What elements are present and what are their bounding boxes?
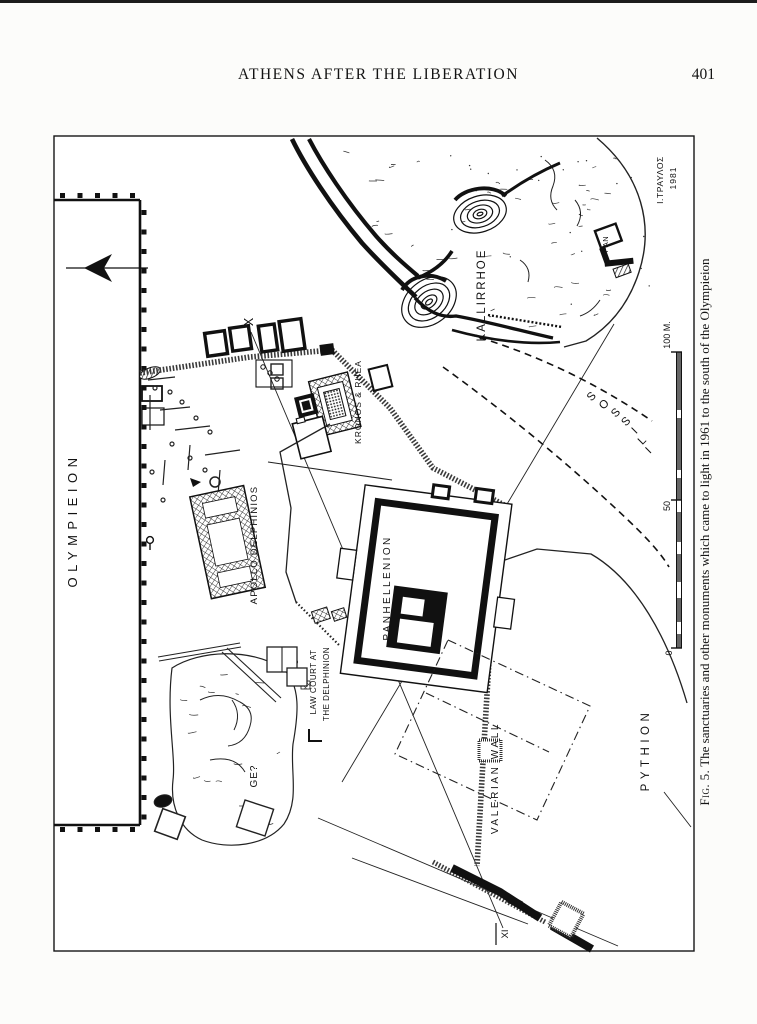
figure-caption-number: Fig. 5. xyxy=(697,770,712,806)
signature-year: 1981 xyxy=(668,167,678,190)
figure-caption-text: The sanctuaries and other monuments whic… xyxy=(697,258,712,766)
panhellenion-label: PANHELLENION xyxy=(382,535,393,640)
law-court-label-1: LAW COURT AT xyxy=(309,650,318,715)
olympieion-label: OLYMPIEION xyxy=(65,453,80,588)
valerian-wall-label: VALERIAN WALL xyxy=(490,722,501,834)
point-xi-label: XI xyxy=(500,930,511,939)
scale-100-label: 100 M. xyxy=(662,321,672,349)
scale-0-label: 0 xyxy=(664,650,674,655)
apollo-delphinios-label: APOLLO DELPHINIOS xyxy=(249,486,260,605)
figure-5-map: OLYMPIEION KALLIRRHOE ILISSOS KRONOS & R… xyxy=(0,0,757,1024)
pythion-label: PYTHION xyxy=(640,709,652,792)
pan-label: PAN xyxy=(601,236,610,252)
kallirrhoe-label: KALLIRRHOE xyxy=(476,249,488,342)
point-x-label: X xyxy=(242,317,256,326)
journal-page: ATHENS AFTER THE LIBERATION 401 xyxy=(0,0,757,1024)
figure-caption: Fig. 5. The sanctuaries and other monume… xyxy=(697,182,717,882)
ge-label: GE? xyxy=(249,764,260,787)
cartographer-signature: Ι.ΤΡΑΥΛΟΣ xyxy=(655,156,665,204)
scale-50-label: 50 xyxy=(662,501,672,511)
kronos-rhea-label: KRONOS & RHEA xyxy=(353,360,363,444)
law-court-label-2: THE DELPHINION xyxy=(322,647,331,721)
